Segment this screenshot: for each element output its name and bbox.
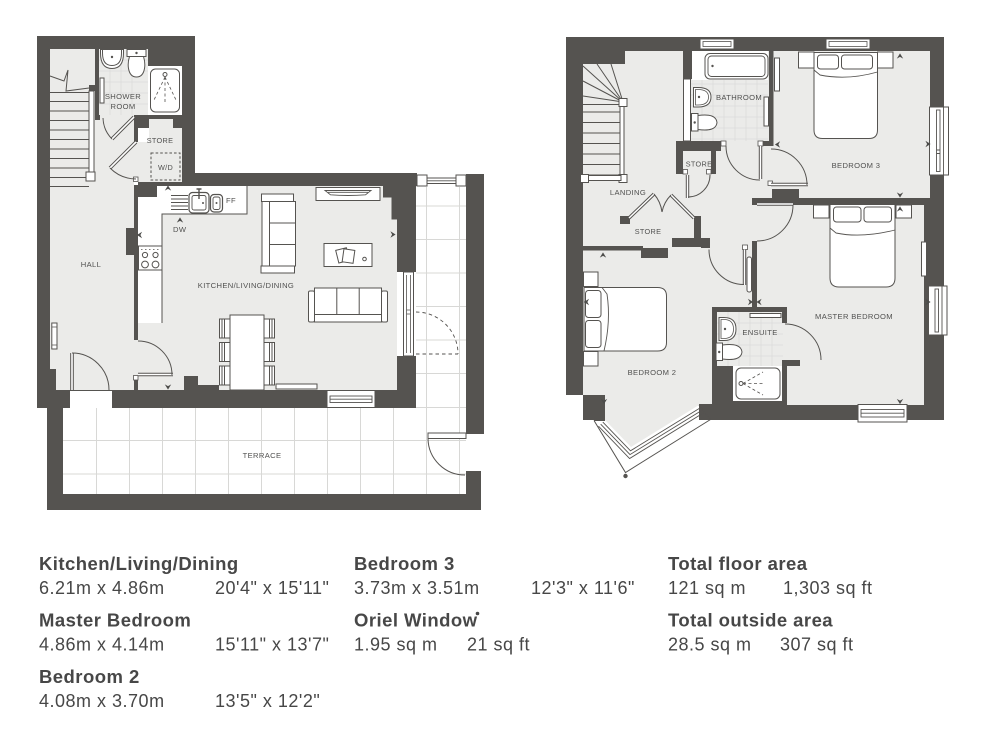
svg-text:4.08m x 3.70m: 4.08m x 3.70m — [39, 691, 165, 711]
svg-text:LANDING: LANDING — [610, 188, 646, 197]
svg-text:12'3" x 11'6": 12'3" x 11'6" — [531, 578, 635, 598]
svg-text:STORE: STORE — [635, 227, 662, 236]
svg-text:307 sq ft: 307 sq ft — [780, 635, 854, 655]
svg-text:13'5" x 12'2": 13'5" x 12'2" — [215, 691, 320, 711]
svg-text:DW: DW — [173, 225, 187, 234]
svg-text:TERRACE: TERRACE — [243, 451, 282, 460]
svg-text:3.73m x 3.51m: 3.73m x 3.51m — [354, 578, 480, 598]
svg-text:BEDROOM 2: BEDROOM 2 — [628, 368, 677, 377]
svg-text:BATHROOM: BATHROOM — [716, 93, 762, 102]
svg-text:HALL: HALL — [81, 260, 101, 269]
svg-text:W/D: W/D — [158, 163, 173, 172]
svg-text:21 sq ft: 21 sq ft — [467, 635, 530, 655]
svg-text:KITCHEN/LIVING/DINING: KITCHEN/LIVING/DINING — [198, 281, 294, 290]
svg-text:Total outside area: Total outside area — [668, 610, 833, 631]
svg-text:1.95 sq m: 1.95 sq m — [354, 635, 438, 655]
svg-text:6.21m x 4.86m: 6.21m x 4.86m — [39, 578, 165, 598]
svg-text:Kitchen/Living/Dining: Kitchen/Living/Dining — [39, 553, 239, 574]
svg-text:4.86m x 4.14m: 4.86m x 4.14m — [39, 635, 165, 655]
svg-text:STORE: STORE — [147, 136, 174, 145]
svg-text:Bedroom 3: Bedroom 3 — [354, 553, 455, 574]
svg-text:MASTER BEDROOM: MASTER BEDROOM — [815, 312, 893, 321]
svg-text:15'11" x 13'7": 15'11" x 13'7" — [215, 635, 329, 655]
svg-text:Master Bedroom: Master Bedroom — [39, 610, 191, 631]
svg-text:121 sq m: 121 sq m — [668, 578, 746, 598]
svg-text:Oriel Window: Oriel Window — [354, 610, 478, 631]
svg-text:1,303 sq ft: 1,303 sq ft — [783, 578, 873, 598]
svg-text:28.5 sq m: 28.5 sq m — [668, 635, 752, 655]
svg-text:Bedroom 2: Bedroom 2 — [39, 666, 140, 687]
svg-text:ENSUITE: ENSUITE — [742, 328, 777, 337]
svg-text:BEDROOM 3: BEDROOM 3 — [832, 161, 881, 170]
svg-text:STORE: STORE — [686, 160, 713, 169]
svg-text:ROOM: ROOM — [110, 102, 135, 111]
svg-text:20'4" x 15'11": 20'4" x 15'11" — [215, 578, 329, 598]
svg-text:SHOWER: SHOWER — [105, 92, 141, 101]
svg-text:FF: FF — [226, 196, 236, 205]
svg-text:Total floor area: Total floor area — [668, 553, 808, 574]
